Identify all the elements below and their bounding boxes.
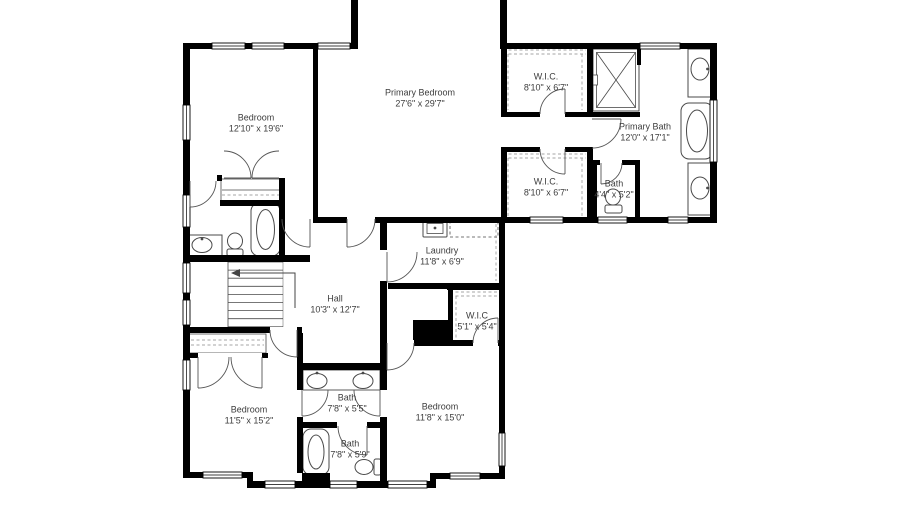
staircase xyxy=(228,262,295,327)
door-swings-layer xyxy=(190,89,622,455)
floor-plan-canvas: Bedroom12'10" x 19'6"Primary Bedroom27'6… xyxy=(0,0,900,529)
floor-plan-drawing xyxy=(0,0,900,529)
